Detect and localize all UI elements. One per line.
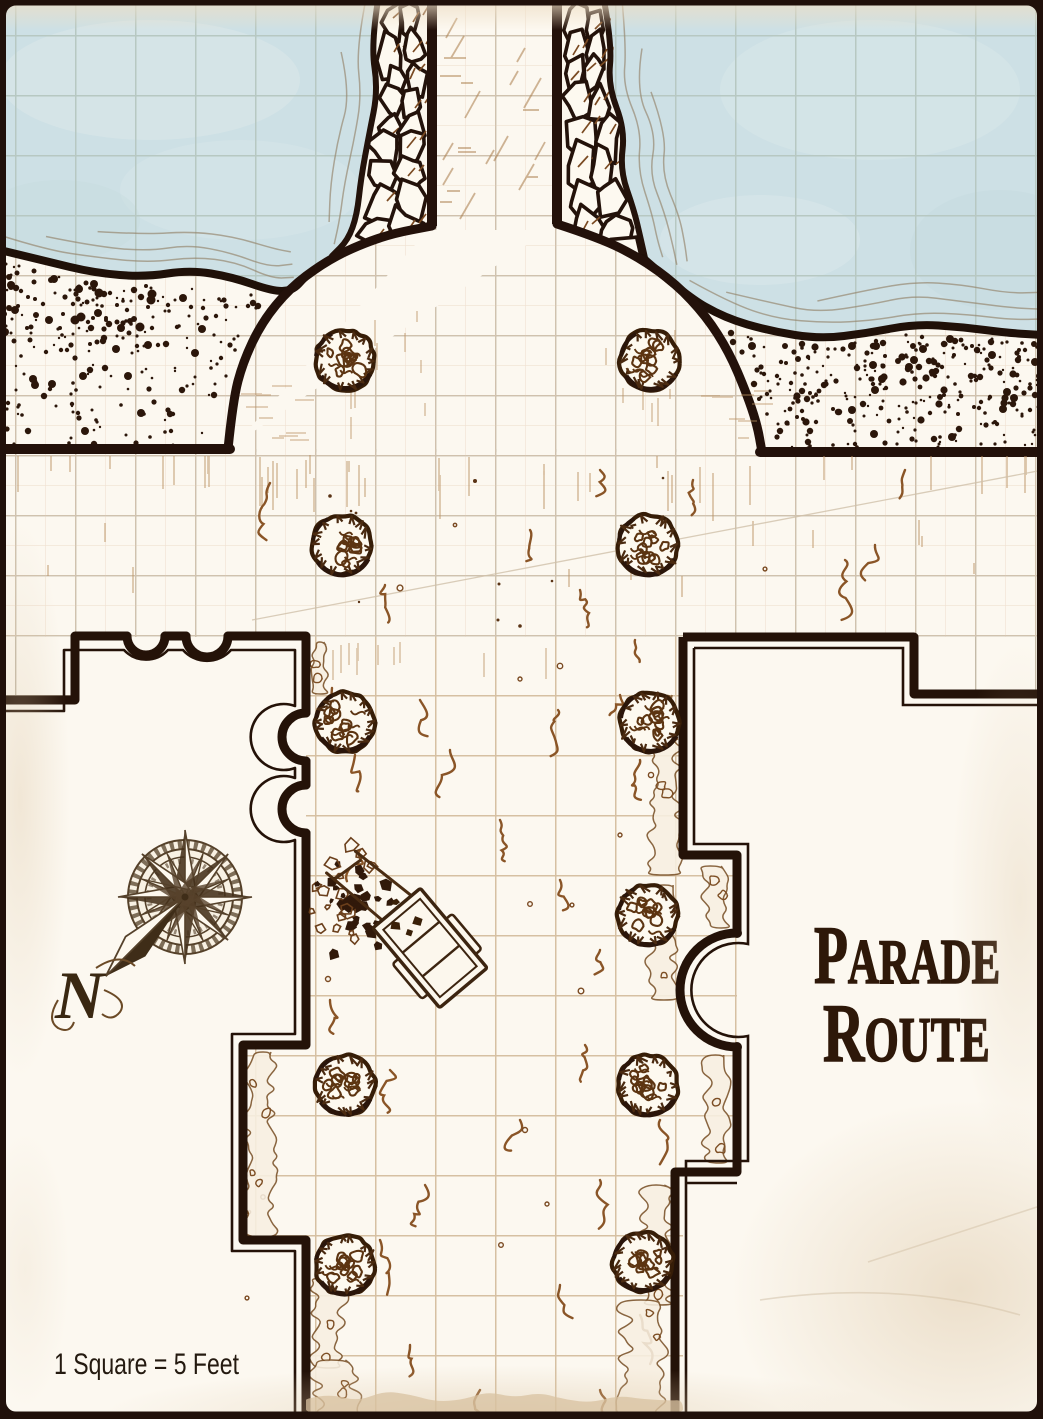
- svg-text:1 Square = 5 Feet: 1 Square = 5 Feet: [54, 1348, 240, 1381]
- svg-text:N: N: [54, 957, 107, 1033]
